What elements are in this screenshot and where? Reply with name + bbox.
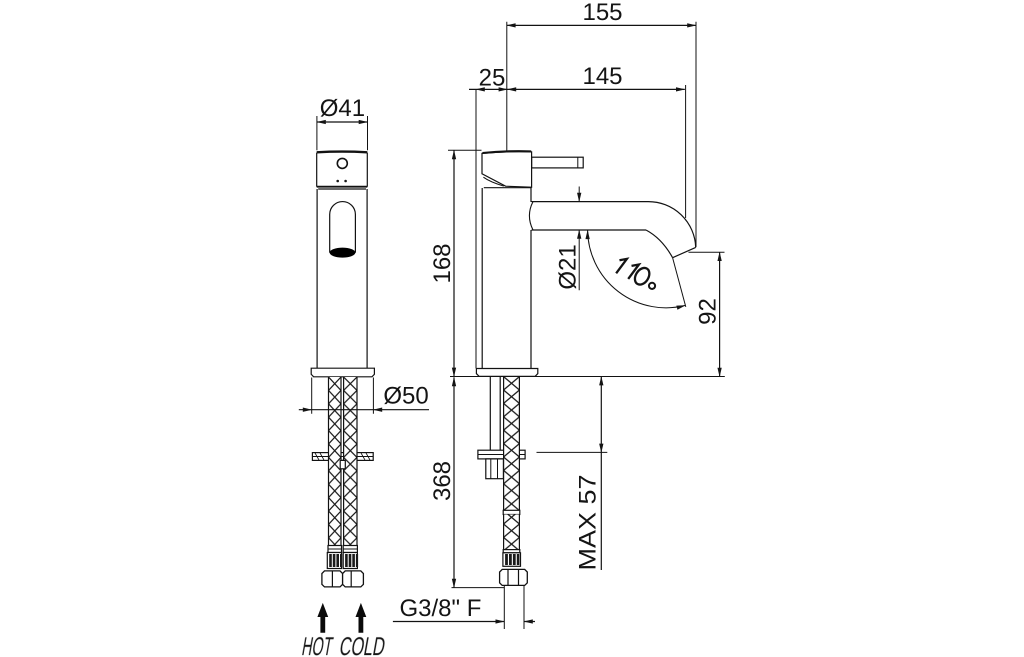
svg-text:Ø21: Ø21 [555, 244, 582, 289]
svg-text:HOT: HOT [300, 631, 335, 657]
svg-text:145: 145 [582, 63, 622, 90]
svg-text:G3/8" F: G3/8" F [400, 595, 482, 622]
svg-text:368: 368 [429, 461, 456, 501]
svg-text:MAX 57: MAX 57 [575, 475, 602, 571]
svg-text:COLD: COLD [337, 631, 387, 657]
svg-text:Ø50: Ø50 [383, 382, 428, 409]
svg-text:92: 92 [695, 298, 722, 325]
svg-text:Ø41: Ø41 [320, 95, 365, 122]
svg-text:155: 155 [582, 0, 622, 26]
svg-text:168: 168 [429, 243, 456, 283]
svg-text:25: 25 [479, 65, 506, 92]
